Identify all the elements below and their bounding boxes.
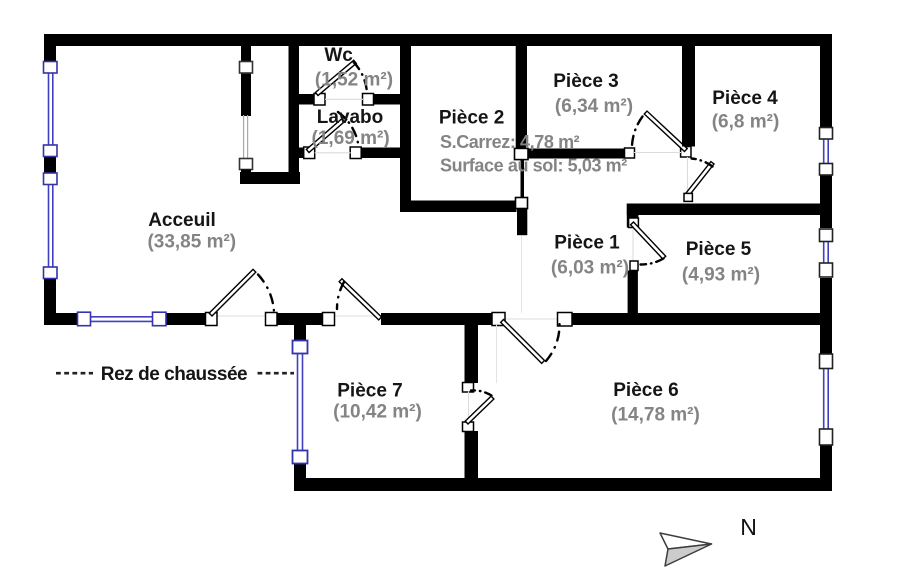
svg-text:S.Carrez: 4,78 m²: S.Carrez: 4,78 m² (440, 132, 580, 152)
svg-text:(1,52 m²): (1,52 m²) (315, 70, 393, 91)
svg-text:Pièce 3: Pièce 3 (553, 71, 619, 92)
svg-text:Wc: Wc (324, 45, 353, 66)
svg-text:Surface au sol: 5,03 m²: Surface au sol: 5,03 m² (440, 156, 627, 176)
svg-text:(4,93 m²): (4,93 m²) (682, 265, 760, 286)
svg-text:(33,85 m²): (33,85 m²) (147, 232, 236, 253)
svg-text:(10,42 m²): (10,42 m²) (333, 402, 422, 423)
svg-text:Pièce 6: Pièce 6 (613, 380, 679, 401)
svg-text:Pièce 4: Pièce 4 (712, 88, 778, 109)
svg-text:Pièce 2: Pièce 2 (439, 107, 505, 128)
svg-text:Acceuil: Acceuil (148, 210, 216, 231)
svg-text:Rez de chaussée: Rez de chaussée (101, 364, 247, 385)
svg-text:(1,69 m²): (1,69 m²) (312, 128, 390, 149)
svg-text:(14,78 m²): (14,78 m²) (611, 405, 700, 426)
svg-text:(6,8 m²): (6,8 m²) (712, 112, 780, 133)
svg-text:Pièce 1: Pièce 1 (554, 233, 620, 254)
svg-text:(6,34 m²): (6,34 m²) (555, 96, 633, 117)
svg-text:Pièce 5: Pièce 5 (686, 239, 752, 260)
svg-text:(6,03 m²): (6,03 m²) (551, 258, 629, 279)
svg-text:Pièce 7: Pièce 7 (337, 380, 403, 401)
svg-text:Lavabo: Lavabo (317, 107, 384, 128)
svg-text:N: N (740, 514, 757, 540)
